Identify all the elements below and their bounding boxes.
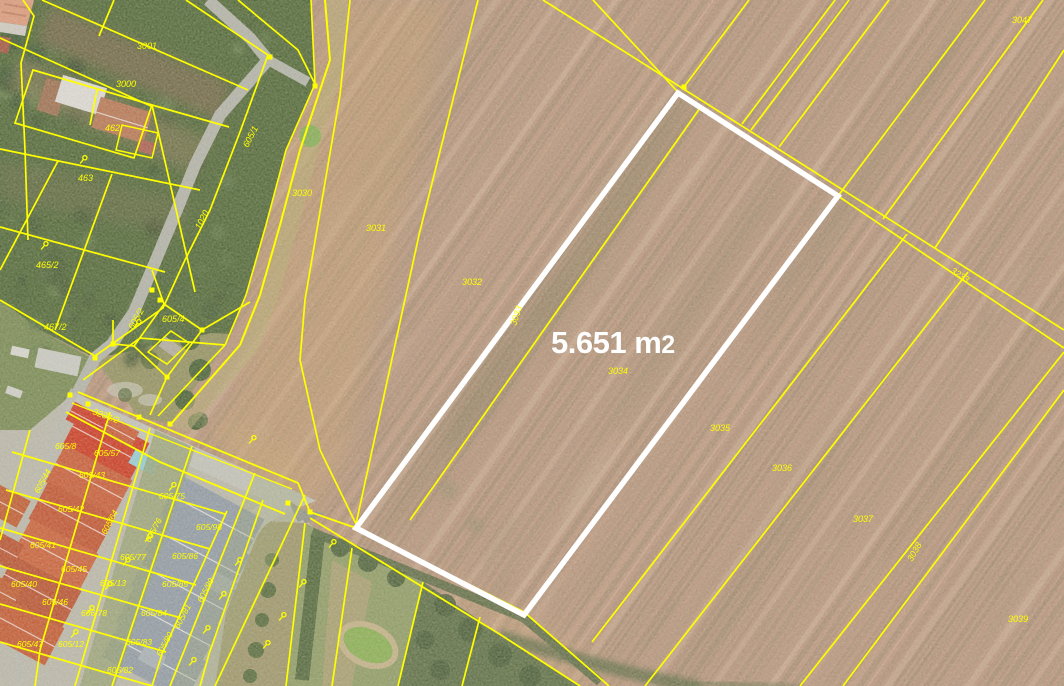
svg-text:605/45: 605/45 [61,564,87,574]
svg-text:605/75: 605/75 [159,491,185,501]
svg-text:605/47: 605/47 [17,639,43,649]
svg-text:462: 462 [105,123,120,133]
svg-text:606/78: 606/78 [81,608,107,618]
svg-text:605/41: 605/41 [30,540,56,550]
svg-text:605/43: 605/43 [79,470,105,480]
svg-text:5.651 m2: 5.651 m2 [551,325,675,360]
svg-text:605/82: 605/82 [107,665,133,675]
svg-text:465/2: 465/2 [36,260,59,270]
svg-text:3031: 3031 [366,223,386,233]
svg-text:605/46: 605/46 [42,597,68,607]
svg-text:605/40: 605/40 [11,579,37,589]
svg-text:3047: 3047 [1012,15,1033,25]
svg-text:605/85: 605/85 [162,579,188,589]
svg-text:467/2: 467/2 [44,322,67,332]
svg-text:3035: 3035 [710,423,731,433]
svg-text:3034: 3034 [608,366,628,376]
svg-text:3039: 3039 [1008,614,1028,624]
svg-text:3037: 3037 [853,514,874,524]
svg-text:605/98: 605/98 [196,522,222,532]
svg-text:3030: 3030 [292,188,312,198]
svg-text:605/42: 605/42 [58,504,84,514]
svg-text:605/57: 605/57 [94,448,120,458]
svg-text:605/4: 605/4 [162,314,185,324]
svg-text:605/84: 605/84 [141,608,167,618]
svg-text:3001: 3001 [137,41,157,51]
svg-text:605/8: 605/8 [55,441,77,451]
svg-text:3000: 3000 [116,79,136,89]
svg-text:3032: 3032 [462,277,482,287]
svg-text:605/13: 605/13 [100,578,126,588]
svg-text:605/83: 605/83 [126,637,152,647]
svg-text:463: 463 [78,173,93,183]
svg-text:605/12: 605/12 [58,639,84,649]
svg-text:3036: 3036 [772,463,792,473]
svg-text:605/86: 605/86 [172,551,198,561]
svg-text:605/77: 605/77 [120,552,146,562]
